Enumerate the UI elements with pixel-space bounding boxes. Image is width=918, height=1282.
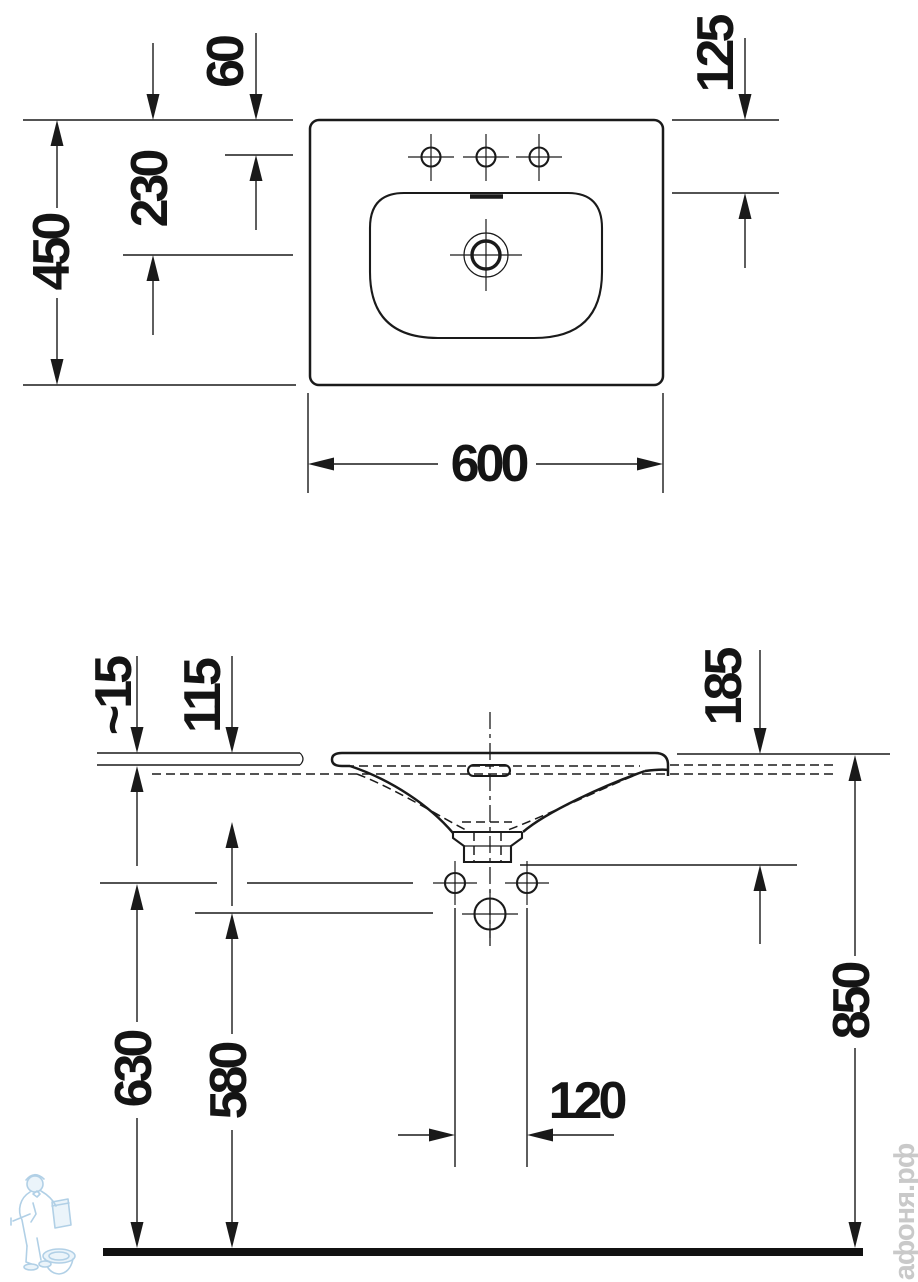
drawing-page: 450 230 60 125 (0, 0, 918, 1282)
dimension-tap-offset-60: 60 (197, 33, 263, 230)
drain-trap-section (453, 832, 522, 862)
dimension-rim-overhang-15: ~15 (85, 656, 144, 866)
dimension-width-600: 600 (308, 393, 663, 493)
side-view-height-reference-lines (100, 865, 797, 913)
dim-label-600: 600 (451, 435, 528, 493)
fixing-holes-section (433, 861, 549, 938)
dimension-bowl-depth-115: 115 (174, 656, 239, 906)
dimension-drain-offset-230: 230 (121, 43, 179, 335)
dim-label-60: 60 (197, 36, 255, 88)
dim-label-15: ~15 (85, 656, 143, 735)
dim-label-125: 125 (687, 15, 745, 93)
side-view: ~15 115 185 630 (85, 648, 890, 1256)
dimension-supply-height-580: 580 (200, 913, 258, 1248)
dimension-rim-height-850: 850 (823, 755, 881, 1248)
dim-label-630: 630 (105, 1031, 163, 1108)
dimension-outlet-offset-185: 185 (695, 648, 767, 944)
hidden-lines (152, 765, 837, 774)
watermark-plumber-logo (11, 1175, 75, 1274)
dimension-fixing-spacing-120: 120 (398, 908, 625, 1167)
dim-label-230: 230 (121, 151, 179, 228)
side-view-left-reference-lines (97, 753, 303, 765)
dimension-fixing-height-630: 630 (105, 884, 163, 1248)
drain-plan (450, 219, 522, 291)
dimension-depth-450: 450 (23, 120, 81, 385)
top-view: 450 230 60 125 (23, 15, 779, 493)
dim-label-580: 580 (200, 1043, 258, 1120)
floor-line (103, 1248, 863, 1256)
dim-label-185: 185 (695, 648, 753, 726)
dim-label-850: 850 (823, 963, 881, 1040)
tap-holes (408, 134, 562, 181)
dim-label-115: 115 (174, 658, 232, 733)
dim-label-450: 450 (23, 214, 81, 291)
technical-drawing-canvas: 450 230 60 125 (0, 0, 918, 1282)
dimension-bowl-edge-125: 125 (687, 15, 752, 268)
dim-label-120: 120 (549, 1072, 626, 1130)
watermark-site-text: афоня.рф (889, 1143, 918, 1280)
